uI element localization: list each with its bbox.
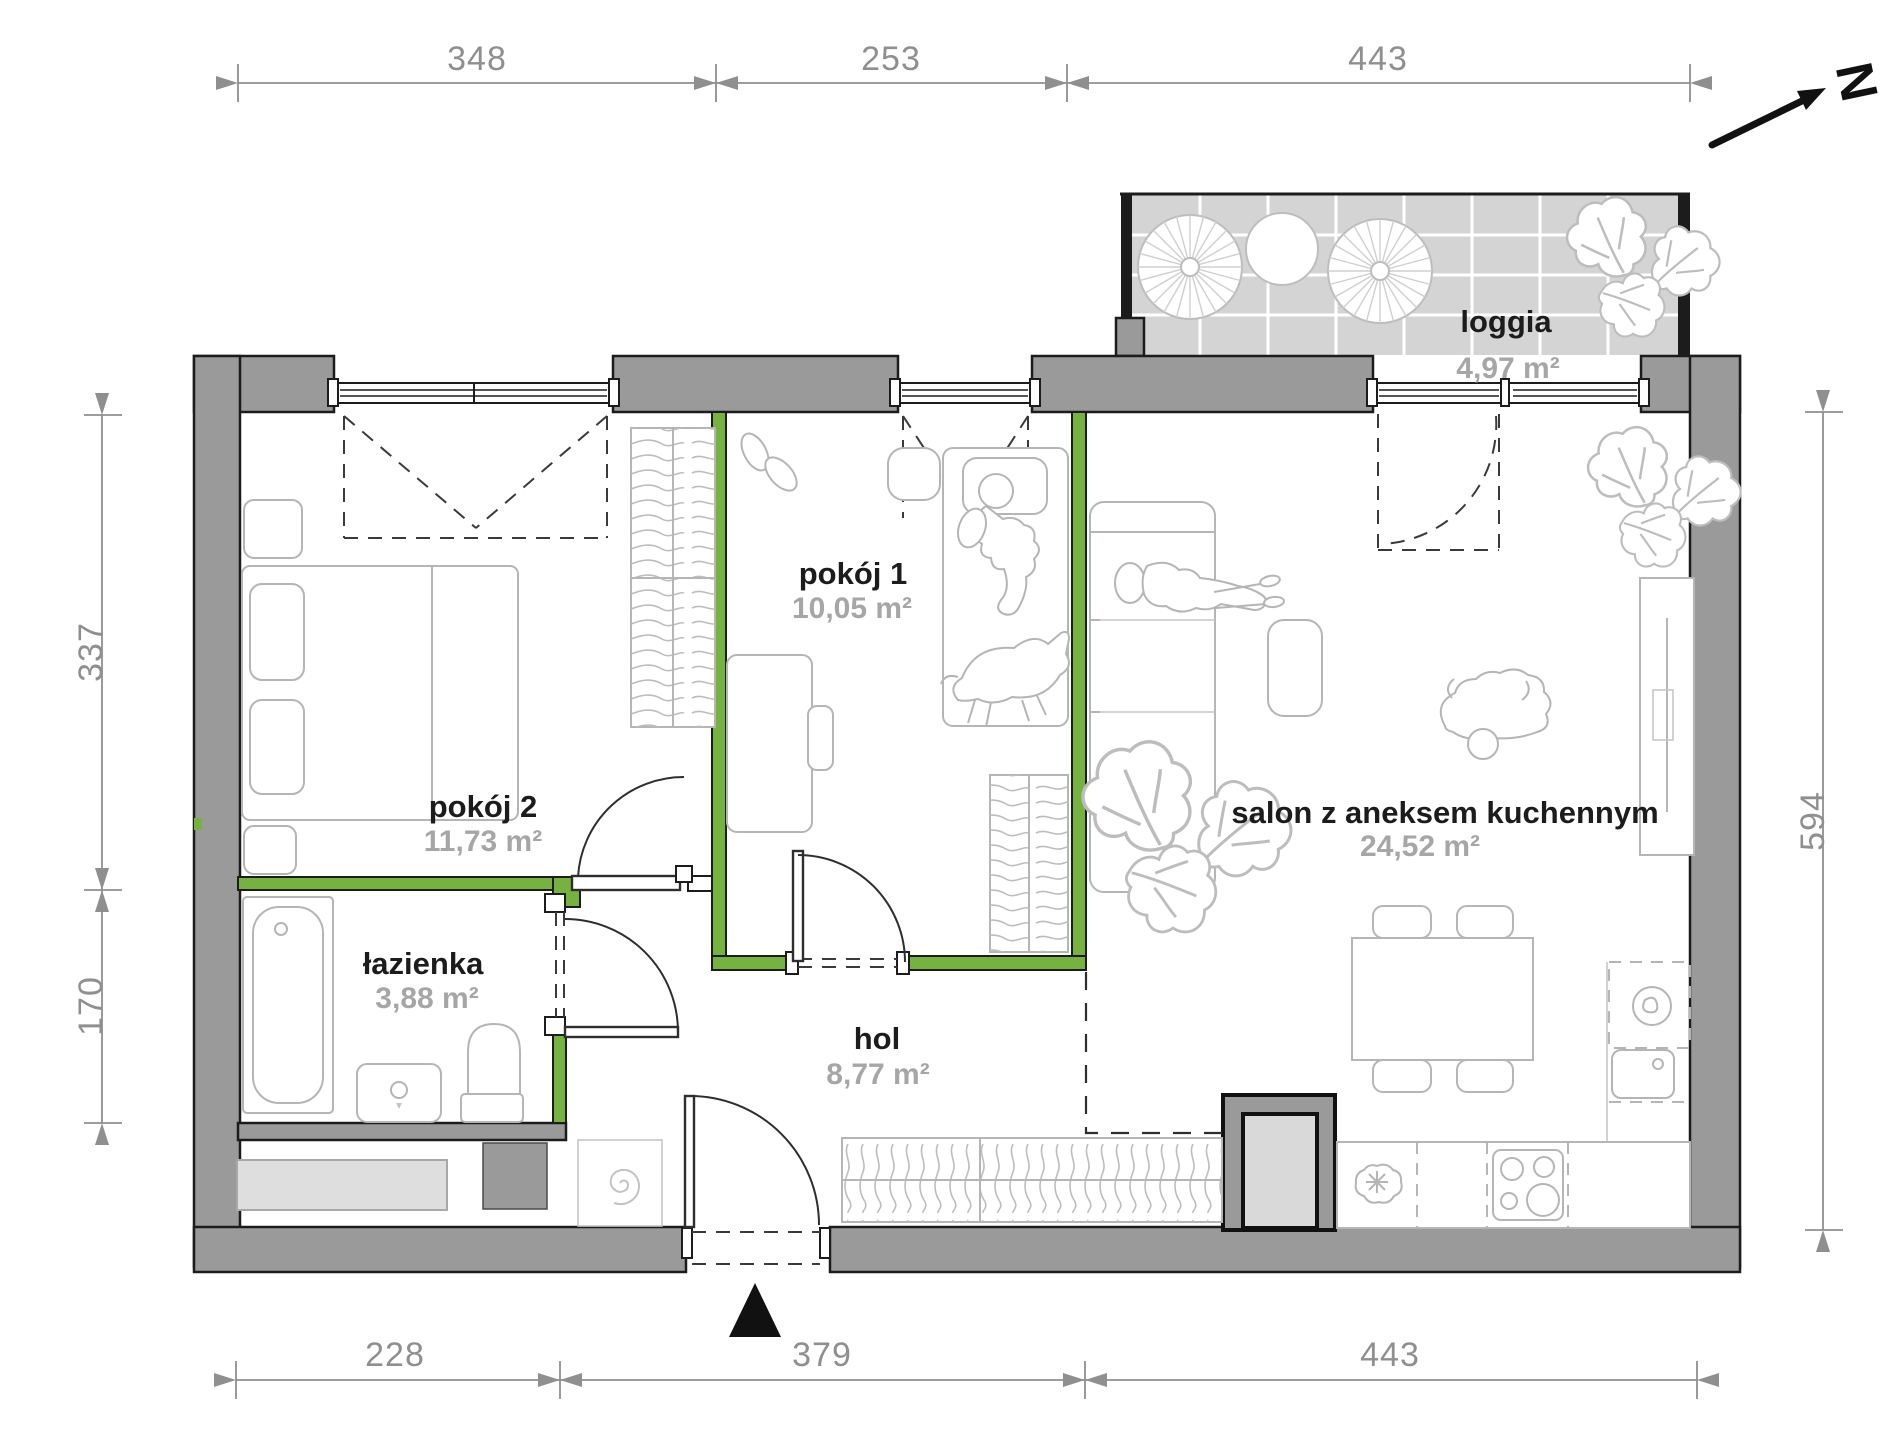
bathroom-bottom-wall	[238, 1123, 566, 1140]
armchair-pouf	[1268, 620, 1322, 716]
floor-plan-drawing: pokój 2 11,73 m² pokój 1 10,05 m² łazien…	[0, 0, 1900, 1439]
dim-left-337: 337	[72, 622, 110, 682]
dim-bottom-443: 443	[1360, 1336, 1420, 1374]
green-wall-pokoj1-bottom-b	[908, 956, 1086, 970]
duct-box	[237, 1160, 447, 1210]
dimension-right: 594	[1794, 412, 1843, 1230]
spiral-icon	[611, 1170, 639, 1204]
balcony-door-arc	[1382, 416, 1496, 544]
green-wall-bathroom-right	[553, 1035, 566, 1123]
green-wall-tick	[194, 818, 202, 830]
nightstand	[244, 826, 296, 874]
loggia-left-wall	[1121, 194, 1132, 318]
door-pokoj1	[786, 851, 909, 974]
bathtub	[243, 897, 333, 1113]
chair	[1457, 906, 1513, 938]
wall-bottom-right	[830, 1227, 1740, 1272]
round-table	[1246, 213, 1318, 285]
installation-shaft-inner	[1243, 1114, 1317, 1228]
dim-bottom-228: 228	[365, 1336, 425, 1374]
door-lazienka	[545, 894, 678, 1037]
wall-bottom-left	[194, 1227, 686, 1272]
room-area-salon: 24,52 m²	[1360, 830, 1480, 863]
chair	[1373, 906, 1431, 938]
dim-top-443: 443	[1348, 40, 1408, 78]
room-label-pokoj1: pokój 1	[799, 556, 908, 591]
washer	[578, 1140, 662, 1226]
green-wall-bathroom-top	[238, 877, 578, 890]
wall-left	[194, 356, 240, 1267]
dim-top-348: 348	[447, 40, 507, 78]
open-boundary-hol-salon	[1086, 972, 1222, 1133]
desk-chair	[808, 706, 833, 770]
balcony-door	[1367, 379, 1509, 550]
furniture-hol	[578, 1138, 1222, 1226]
furniture-pokoj1	[727, 429, 1069, 952]
north-label: N	[1824, 58, 1889, 107]
chair	[1373, 1060, 1431, 1092]
room-area-pokoj1: 10,05 m²	[792, 592, 912, 625]
hall-wardrobe	[842, 1138, 1222, 1222]
window-pokoj2	[328, 379, 619, 538]
fridge-cabinet	[1609, 962, 1690, 1048]
floor-plan-page: pokój 2 11,73 m² pokój 1 10,05 m² łazien…	[0, 0, 1900, 1439]
desk	[727, 655, 812, 832]
parasol-table-icon	[1138, 215, 1242, 319]
loggia-wall-stub	[1116, 318, 1144, 356]
room-area-lazienka: 3,88 m²	[375, 982, 478, 1015]
room-label-lazienka: łazienka	[363, 946, 484, 981]
room-area-hol: 8,77 m²	[826, 1058, 929, 1091]
room-label-loggia: loggia	[1460, 304, 1552, 339]
dim-bottom-379: 379	[792, 1336, 852, 1374]
dim-top-253: 253	[861, 40, 921, 78]
room-label-salon: salon z aneksem kuchennym	[1231, 795, 1658, 830]
dining-table	[1352, 938, 1533, 1060]
wall-top-2	[613, 356, 898, 412]
door-pokoj2	[572, 777, 712, 891]
kitchen-sink	[1612, 1050, 1674, 1098]
chair	[1457, 1060, 1513, 1092]
room-area-pokoj2: 11,73 m²	[424, 825, 542, 858]
green-wall-pokoj1-bottom-a	[712, 956, 792, 970]
dimension-left: 337 170	[72, 415, 122, 1123]
dimension-bottom: 228 379 443	[236, 1336, 1697, 1399]
bathroom-sink	[357, 1064, 441, 1122]
wardrobe	[990, 775, 1068, 952]
entrance-door	[682, 1096, 830, 1264]
dining-table-set	[1352, 906, 1533, 1092]
dim-right-594: 594	[1794, 791, 1832, 851]
loggia-area	[1116, 184, 1732, 356]
pillow	[250, 584, 304, 680]
dim-left-170: 170	[72, 976, 110, 1036]
nightstand	[244, 500, 302, 558]
pillow	[250, 700, 304, 794]
green-wall-pokoj1-right	[1072, 412, 1086, 970]
sitting-person-figure	[1441, 669, 1551, 759]
hob	[1493, 1150, 1563, 1220]
room-label-hol: hol	[854, 1021, 901, 1056]
parasol-table-icon	[1328, 219, 1432, 323]
wall-top-3	[1032, 356, 1373, 412]
wardrobe	[631, 428, 715, 727]
dimension-top: 348 253 443	[238, 40, 1690, 102]
room-area-loggia: 4,97 m²	[1456, 352, 1559, 385]
room-label-pokoj2: pokój 2	[429, 789, 538, 824]
toilet	[461, 1024, 523, 1122]
entrance-triangle-icon	[729, 1283, 781, 1337]
north-arrow-icon: N	[1712, 58, 1888, 145]
pillar-block	[483, 1143, 547, 1209]
pouf	[888, 448, 940, 500]
